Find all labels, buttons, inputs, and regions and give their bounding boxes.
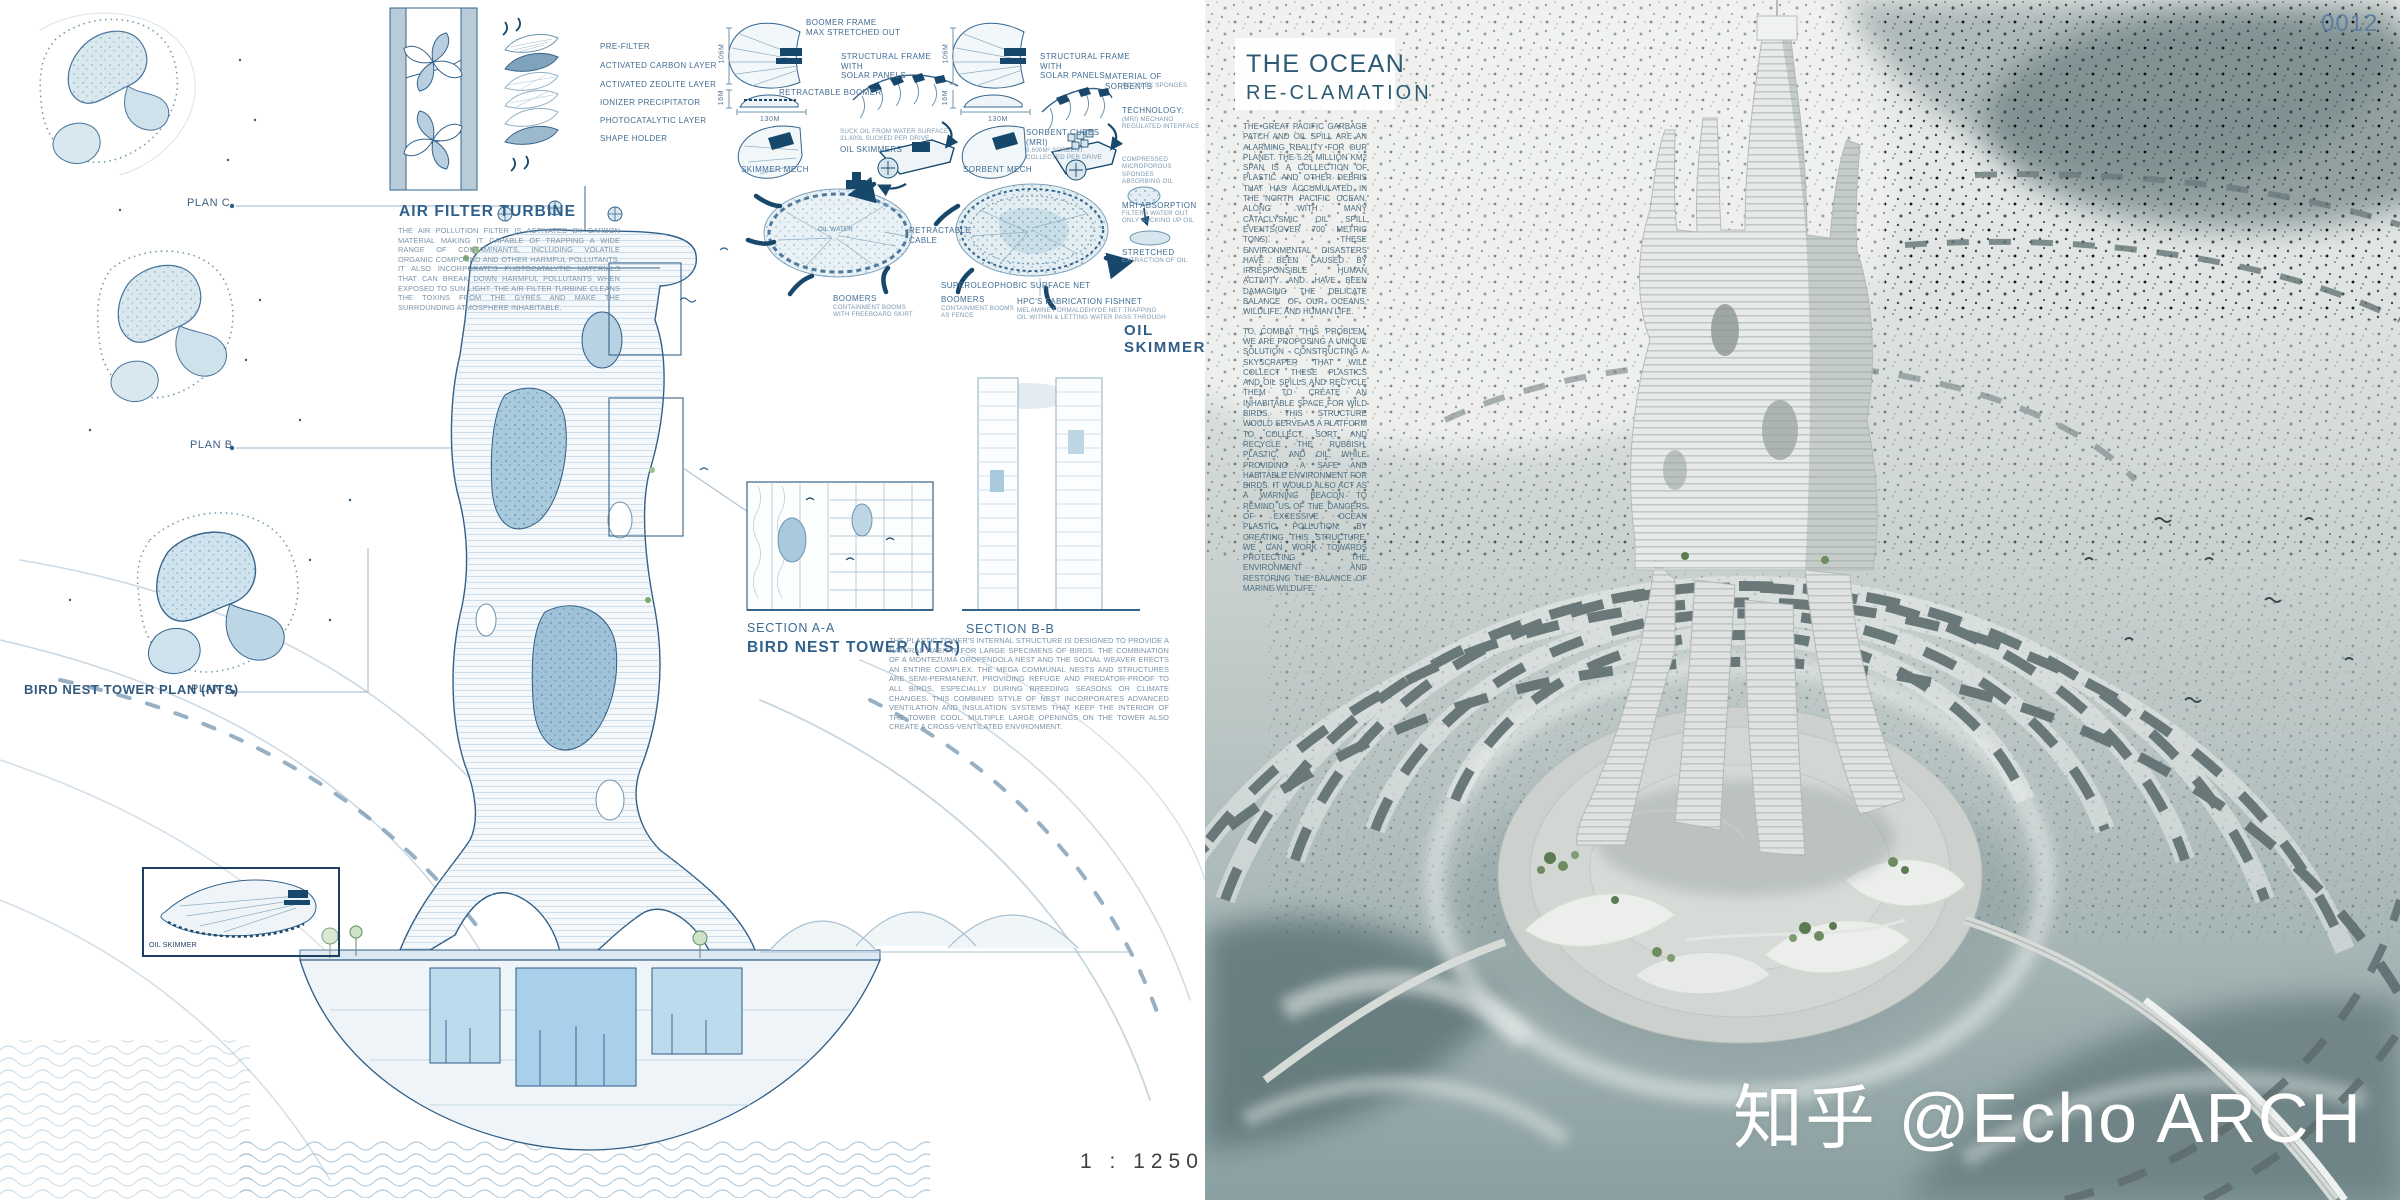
- ocean-render-panel: THE OCEAN RE-CLAMATION THE GREAT PACIFIC…: [1205, 0, 2400, 1200]
- dim-106m-left: 106M: [718, 44, 725, 64]
- section-bb-label: SECTION B-B: [966, 622, 1055, 636]
- compressed-sponges-note: COMPRESSED MICROPOROUS SPONGES ABSORBING…: [1122, 156, 1205, 186]
- project-description: THE GREAT PACIFIC GARBAGE PATCH AND OIL …: [1243, 122, 1367, 603]
- dim-16m-left: 16M: [718, 90, 725, 105]
- section-bb-drawing: [962, 378, 1140, 610]
- air-filter-body: THE AIR POLLUTION FILTER IS ACTIVATED BY…: [398, 226, 620, 312]
- entry-code: 0012: [2321, 10, 2378, 38]
- material-sorbents-note: ECOFLEX SPONGES: [1123, 82, 1187, 89]
- oil-water-label: OIL WATER: [818, 226, 853, 233]
- project-title-line1: THE OCEAN: [1246, 50, 1405, 79]
- section-aa-label: SECTION A-A: [747, 621, 835, 635]
- boomers-note-right: CONTAINMENT BOOMS AS FENCE: [941, 305, 1014, 320]
- legend-pre-filter: PRE-FILTER: [600, 42, 650, 52]
- project-description-p2: TO COMBAT THIS PROBLEM, WE ARE PROPOSING…: [1243, 327, 1367, 595]
- boomers-label-right: BOOMERS: [941, 295, 985, 305]
- air-filter-strip-drawing: [390, 8, 477, 190]
- left-presentation-board: PLAN C PLAN B PLAN A BIRD NEST TOWER PLA…: [0, 0, 1205, 1200]
- project-title-line2: RE-CLAMATION: [1246, 82, 1432, 105]
- section-aa-drawing: [747, 482, 933, 610]
- oil-skimmers-label: OIL SKIMMERS: [840, 145, 902, 155]
- bird-nest-tower-body: THE PLASTIC TOWER'S INTERNAL STRUCTURE I…: [889, 636, 1169, 732]
- sorbent-cubes-note: 9,600M³ SORBENT COLLECTED PER DRIVE: [1026, 147, 1102, 162]
- legend-ionizer: IONIZER PRECIPITATOR: [600, 98, 700, 108]
- oil-skimmer-title: OIL SKIMMER: [1124, 322, 1206, 356]
- legend-photocatalytic: PHOTOCATALYTIC LAYER: [600, 116, 706, 126]
- sorbent-cubes-label: SORBENT CUBES (MRI): [1026, 128, 1100, 147]
- sorbent-mech-label: SORBENT MECH: [963, 165, 1032, 175]
- superoleophobic-label: SUPEROLEOPHOBIC SURFACE NET: [941, 281, 1091, 291]
- retractable-cable-label: RETRACTABLE CABLE: [909, 226, 971, 245]
- filter-legend-glyphs: [503, 18, 558, 171]
- dim-16m-right: 16M: [942, 90, 949, 105]
- bird-nest-plan-label: BIRD NEST TOWER PLAN (NTS): [24, 682, 239, 697]
- retractable-boomer-label: RETRACTABLE BOOMER: [779, 88, 882, 98]
- ocean-render-artwork: [1205, 0, 2400, 1200]
- project-description-p1: THE GREAT PACIFIC GARBAGE PATCH AND OIL …: [1243, 122, 1367, 318]
- solar-frame-label-left: STRUCTURAL FRAME WITH SOLAR PANELS: [841, 52, 931, 81]
- plan-c-label: PLAN C: [187, 199, 230, 209]
- fishnet-label: HPC'S FABRICATION FISHNET: [1017, 297, 1142, 307]
- fishnet-note: MELAMINE FORMALDEHYDE NET TRAPPING OIL W…: [1017, 307, 1166, 322]
- plan-c-drawing: [40, 13, 560, 208]
- drawing-scale: 1 : 1250: [1080, 1150, 1204, 1174]
- skimmer-mech-label: SKIMMER MECH: [741, 165, 809, 175]
- boomers-note-left: CONTAINMENT BOOMS WITH FREEBOARD SKIRT: [833, 304, 913, 319]
- suck-oil-note: SUCK OIL FROM WATER SURFACE 31,600L SUCK…: [840, 128, 948, 143]
- watermark-text: 知乎 @Echo ARCH: [1733, 1062, 2363, 1163]
- boomers-label-left: BOOMERS: [833, 294, 877, 304]
- dim-106m-right: 106M: [942, 44, 949, 64]
- plan-a-drawing: [138, 513, 368, 694]
- technology-label: TECHNOLOGY:: [1122, 106, 1184, 116]
- technology-note: (MRI) MECHANO REGULATED INTERFACE: [1122, 116, 1200, 131]
- stretched-note: EXTRACTION OF OIL: [1122, 257, 1187, 264]
- oil-skimmer-box-label: OIL SKIMMER: [149, 942, 197, 949]
- air-filter-title: AIR FILTER TURBINE: [399, 203, 576, 221]
- left-board-artwork: [0, 0, 1205, 1200]
- legend-shape-holder: SHAPE HOLDER: [600, 134, 667, 144]
- skimmer-diagram-drawing: [726, 23, 958, 188]
- legend-carbon: ACTIVATED CARBON LAYER: [600, 61, 717, 71]
- dim-130m-left: 130M: [760, 116, 780, 123]
- plan-b-label: PLAN B: [190, 441, 233, 451]
- legend-zeolite: ACTIVATED ZEOLITE LAYER: [600, 80, 716, 90]
- dim-130m-right: 130M: [988, 116, 1008, 123]
- mri-absorption-note: FILTERS WATER OUT ONLY SUCKING UP OIL: [1122, 210, 1194, 225]
- boomer-frame-label: BOOMER FRAME MAX STRETCHED OUT: [806, 18, 900, 37]
